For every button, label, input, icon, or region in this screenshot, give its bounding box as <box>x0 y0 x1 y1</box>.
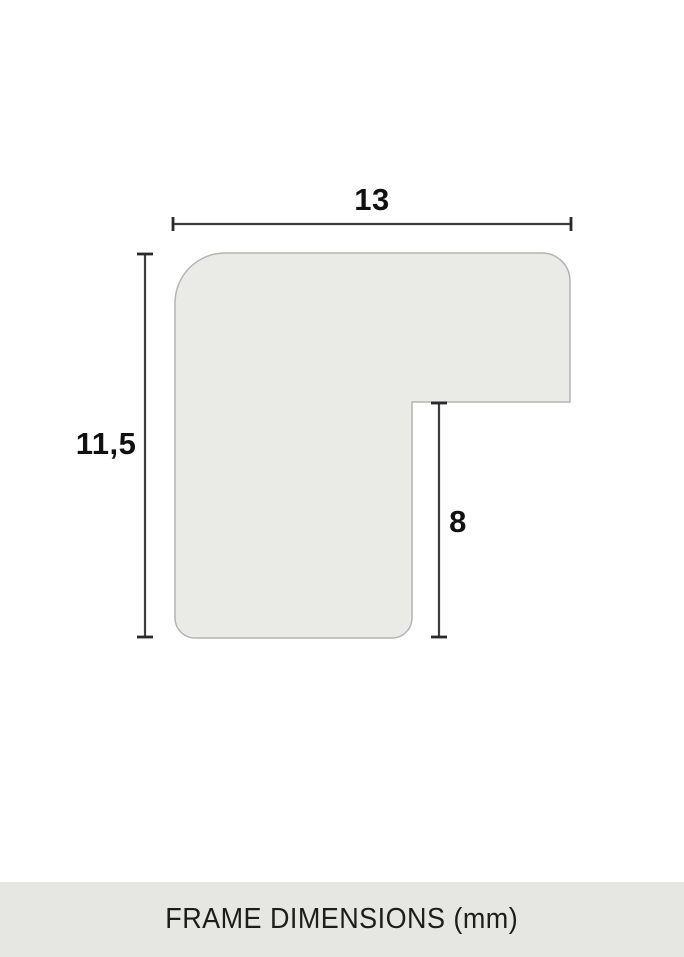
frame-dimensions-diagram: 13 11,5 8 FRAME DIMENSIONS (mm) <box>0 0 684 957</box>
caption-text: FRAME DIMENSIONS (mm) <box>166 903 519 936</box>
caption-bar: FRAME DIMENSIONS (mm) <box>0 882 684 957</box>
profile-drawing <box>0 0 684 957</box>
width-dimension-line <box>173 217 571 231</box>
frame-profile-shape <box>175 253 570 638</box>
depth-dimension-label: 8 <box>408 506 508 537</box>
height-dimension-label: 11,5 <box>56 428 156 459</box>
width-dimension-label: 13 <box>322 184 422 215</box>
